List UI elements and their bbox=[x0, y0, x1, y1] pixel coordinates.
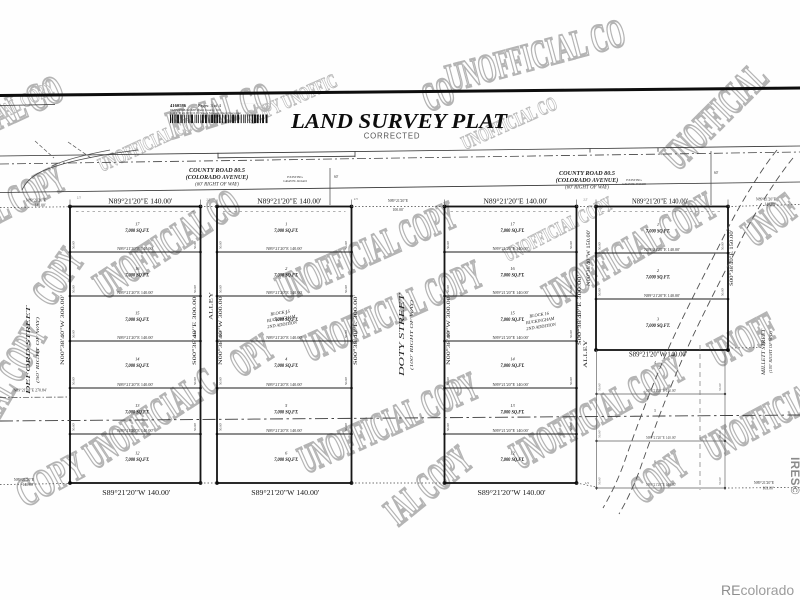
svg-text:140.00': 140.00' bbox=[764, 203, 775, 207]
svg-text:50.00': 50.00' bbox=[193, 376, 197, 385]
svg-text:N89°21'20"E 140.00': N89°21'20"E 140.00' bbox=[644, 247, 680, 252]
svg-text:50.00': 50.00' bbox=[72, 329, 76, 338]
svg-text:50.00': 50.00' bbox=[344, 240, 348, 249]
svg-text:S89°21'20"W 140.00': S89°21'20"W 140.00' bbox=[102, 488, 171, 497]
svg-text:7,000 SQ.FT.: 7,000 SQ.FT. bbox=[125, 228, 149, 234]
svg-text:N89°21'20"E 140.00': N89°21'20"E 140.00' bbox=[493, 246, 529, 251]
svg-text:50.00': 50.00' bbox=[721, 241, 725, 250]
svg-text:7,000 SQ.FT.: 7,000 SQ.FT. bbox=[646, 275, 670, 281]
svg-text:N89°21'20"E 140.00': N89°21'20"E 140.00' bbox=[117, 428, 153, 433]
svg-text:N89°21'20"E 140.00': N89°21'20"E 140.00' bbox=[257, 197, 321, 205]
svg-text:Pages: 3 of 4: Pages: 3 of 4 bbox=[198, 103, 222, 108]
svg-text:N89°21'20"E: N89°21'20"E bbox=[26, 199, 47, 203]
svg-text:50.00': 50.00' bbox=[598, 430, 602, 438]
svg-text:1 of 1 R 21.00 D 0.00 Steve Mo: 1 of 1 R 21.00 D 0.00 Steve Moreno Clerk… bbox=[170, 111, 241, 115]
svg-text:S89°21'20"W 140.00': S89°21'20"W 140.00' bbox=[478, 488, 547, 497]
svg-text:6: 6 bbox=[654, 459, 656, 464]
svg-text:N89°21'20"E 140.00': N89°21'20"E 140.00' bbox=[493, 335, 529, 340]
svg-text:N89°21'20"E 270.84': N89°21'20"E 270.84' bbox=[13, 389, 46, 393]
svg-text:N89°21'20"E 140.00': N89°21'20"E 140.00' bbox=[632, 197, 688, 205]
svg-text:N89°21'20"E 140.00': N89°21'20"E 140.00' bbox=[117, 335, 153, 340]
svg-text:100.00': 100.00' bbox=[392, 208, 403, 212]
svg-text:7,000 SQ.FT.: 7,000 SQ.FT. bbox=[501, 273, 525, 279]
svg-text:50.00': 50.00' bbox=[193, 284, 197, 293]
svg-text:N89°21'20"E 140.00': N89°21'20"E 140.00' bbox=[266, 290, 302, 295]
svg-text:4: 4 bbox=[654, 360, 656, 365]
svg-text:N89°21'20"E 140.00': N89°21'20"E 140.00' bbox=[108, 197, 172, 205]
svg-text:7,000 SQ.FT.: 7,000 SQ.FT. bbox=[646, 323, 670, 329]
svg-text:N89°21'20"E 140.00': N89°21'20"E 140.00' bbox=[493, 382, 529, 387]
svg-text:(COLORADO AVENUE): (COLORADO AVENUE) bbox=[556, 177, 619, 184]
svg-text:(60' RIGHT OF WAY): (60' RIGHT OF WAY) bbox=[565, 186, 609, 191]
svg-text:IRES©: IRES© bbox=[788, 457, 800, 495]
svg-text:50.00': 50.00' bbox=[193, 422, 197, 431]
svg-text:N89°21'20"E 140.00': N89°21'20"E 140.00' bbox=[646, 436, 676, 440]
svg-text:50.00': 50.00' bbox=[598, 383, 602, 391]
svg-text:S89°21'20"W 140.00': S89°21'20"W 140.00' bbox=[629, 351, 687, 359]
svg-text:N89°21'20"E 140.00': N89°21'20"E 140.00' bbox=[646, 483, 676, 487]
svg-text:REcolorado: REcolorado bbox=[721, 582, 794, 598]
svg-text:7,000 SQ.FT.: 7,000 SQ.FT. bbox=[501, 363, 525, 369]
svg-text:60': 60' bbox=[334, 175, 339, 179]
svg-text:N89°21'20"E 140.00': N89°21'20"E 140.00' bbox=[266, 428, 302, 433]
svg-text:7,000 SQ.FT.: 7,000 SQ.FT. bbox=[646, 228, 670, 234]
svg-text:103.00': 103.00' bbox=[762, 487, 773, 491]
svg-text:4160586: 4160586 bbox=[170, 103, 187, 108]
svg-text:7,000 SQ.FT.: 7,000 SQ.FT. bbox=[125, 457, 149, 463]
svg-text:2.5': 2.5' bbox=[583, 198, 588, 202]
svg-text:LAND SURVEY PLAT: LAND SURVEY PLAT bbox=[290, 109, 508, 133]
svg-text:7,000 SQ.FT.: 7,000 SQ.FT. bbox=[274, 273, 298, 279]
svg-text:N89°21'20"E 140.00': N89°21'20"E 140.00' bbox=[266, 246, 302, 251]
svg-text:50.00': 50.00' bbox=[598, 477, 602, 485]
svg-text:50.00': 50.00' bbox=[718, 430, 722, 438]
svg-text:50.00': 50.00' bbox=[569, 284, 573, 293]
svg-text:50.00': 50.00' bbox=[718, 477, 722, 485]
svg-text:(50' RIGHT OF WAY): (50' RIGHT OF WAY) bbox=[35, 316, 40, 383]
svg-text:7,000 SQ.FT.: 7,000 SQ.FT. bbox=[501, 317, 525, 323]
svg-text:N89°21'20"E 140.00': N89°21'20"E 140.00' bbox=[493, 290, 529, 295]
svg-text:GRAVEL ROAD: GRAVEL ROAD bbox=[283, 179, 307, 183]
svg-text:50.00': 50.00' bbox=[72, 240, 76, 249]
svg-text:ALLEY: ALLEY bbox=[583, 340, 589, 368]
svg-text:50.00': 50.00' bbox=[446, 240, 450, 249]
svg-text:MILLETT STREET: MILLETT STREET bbox=[761, 328, 767, 376]
svg-text:N00°38'40"W 150.00': N00°38'40"W 150.00' bbox=[585, 230, 592, 286]
svg-text:2.5': 2.5' bbox=[77, 196, 82, 200]
svg-text:7,000 SQ.FT.: 7,000 SQ.FT. bbox=[274, 228, 298, 234]
svg-text:2.5': 2.5' bbox=[206, 198, 211, 202]
svg-text:DEFORD STREET: DEFORD STREET bbox=[25, 304, 32, 396]
svg-text:N89°21'20"E 140.00': N89°21'20"E 140.00' bbox=[117, 290, 153, 295]
svg-text:N89°21'20"E 140.00': N89°21'20"E 140.00' bbox=[266, 382, 302, 387]
svg-text:50.00': 50.00' bbox=[219, 376, 223, 385]
svg-text:N89°21'20"E 140.00': N89°21'20"E 140.00' bbox=[117, 382, 153, 387]
svg-text:(100' RIGHT OF WAY): (100' RIGHT OF WAY) bbox=[769, 330, 773, 373]
svg-text:N00°38'40"W 300.00': N00°38'40"W 300.00' bbox=[445, 295, 452, 365]
svg-text:140.00': 140.00' bbox=[34, 204, 45, 208]
svg-text:1: 1 bbox=[657, 222, 659, 227]
svg-text:50.00': 50.00' bbox=[219, 240, 223, 249]
svg-text:50.00': 50.00' bbox=[598, 287, 602, 296]
svg-text:50.00': 50.00' bbox=[446, 376, 450, 385]
svg-text:7,000 SQ.FT.: 7,000 SQ.FT. bbox=[125, 410, 149, 416]
svg-text:COUNTY ROAD 80.5: COUNTY ROAD 80.5 bbox=[189, 167, 245, 174]
svg-text:300.00': 300.00' bbox=[575, 325, 580, 339]
svg-text:N89°21'20"E: N89°21'20"E bbox=[756, 198, 777, 202]
svg-text:7,000 SQ.FT.: 7,000 SQ.FT. bbox=[501, 228, 525, 234]
svg-text:N89°21'20"E: N89°21'20"E bbox=[388, 199, 409, 203]
svg-text:50.00': 50.00' bbox=[344, 284, 348, 293]
svg-text:50.00': 50.00' bbox=[718, 383, 722, 391]
svg-text:N89°21'20"E 140.00': N89°21'20"E 140.00' bbox=[646, 389, 676, 393]
svg-text:50.00': 50.00' bbox=[219, 422, 223, 431]
svg-text:50.00': 50.00' bbox=[72, 284, 76, 293]
svg-text:N89°21'20"E: N89°21'20"E bbox=[754, 481, 775, 485]
svg-text:ALLEY: ALLEY bbox=[209, 292, 215, 320]
svg-text:EXISTING: EXISTING bbox=[626, 178, 642, 182]
svg-text:50.00': 50.00' bbox=[344, 422, 348, 431]
svg-text:DOTY STREET: DOTY STREET bbox=[399, 292, 406, 378]
svg-text:7,000 SQ.FT.: 7,000 SQ.FT. bbox=[125, 363, 149, 369]
svg-text:5: 5 bbox=[654, 408, 656, 413]
svg-text:50.00': 50.00' bbox=[446, 422, 450, 431]
svg-text:50.00': 50.00' bbox=[569, 376, 573, 385]
svg-text:50.00': 50.00' bbox=[344, 329, 348, 338]
svg-text:N89°21'20"E: N89°21'20"E bbox=[14, 478, 35, 482]
svg-text:50.00': 50.00' bbox=[72, 422, 76, 431]
svg-text:(COLORADO AVENUE): (COLORADO AVENUE) bbox=[186, 174, 249, 181]
svg-text:50.00': 50.00' bbox=[219, 284, 223, 293]
svg-text:2.5': 2.5' bbox=[354, 197, 359, 201]
svg-text:S89°21'20"W 140.00': S89°21'20"W 140.00' bbox=[251, 488, 320, 497]
svg-text:50.00': 50.00' bbox=[569, 240, 573, 249]
svg-text:S00°38'40"E 300.00': S00°38'40"E 300.00' bbox=[191, 295, 198, 365]
svg-text:140.00': 140.00' bbox=[22, 483, 33, 487]
svg-text:N89°21'20"E 140.00': N89°21'20"E 140.00' bbox=[117, 246, 153, 251]
svg-text:7,000 SQ.FT.: 7,000 SQ.FT. bbox=[274, 363, 298, 369]
svg-text:N00°38'40"W 300.00': N00°38'40"W 300.00' bbox=[59, 295, 66, 365]
svg-text:7,000 SQ.FT.: 7,000 SQ.FT. bbox=[125, 317, 149, 323]
svg-text:1: 1 bbox=[285, 221, 287, 226]
svg-text:COUNTY ROAD 80.5: COUNTY ROAD 80.5 bbox=[559, 170, 615, 177]
svg-text:N89°21'20"E 140.00': N89°21'20"E 140.00' bbox=[493, 428, 529, 433]
svg-text:7,000 SQ.FT.: 7,000 SQ.FT. bbox=[274, 410, 298, 416]
svg-text:50.00': 50.00' bbox=[193, 240, 197, 249]
svg-text:N89°21'20"E 140.00': N89°21'20"E 140.00' bbox=[266, 335, 302, 340]
svg-text:50.00': 50.00' bbox=[72, 376, 76, 385]
svg-text:(100' RIGHT OF WAY): (100' RIGHT OF WAY) bbox=[409, 299, 414, 370]
svg-text:50.00': 50.00' bbox=[721, 287, 725, 296]
svg-text:7,000 SQ.FT.: 7,000 SQ.FT. bbox=[274, 457, 298, 463]
svg-text:(60' RIGHT OF WAY): (60' RIGHT OF WAY) bbox=[195, 183, 239, 188]
svg-text:N89°21'20"E 140.00': N89°21'20"E 140.00' bbox=[484, 197, 548, 205]
svg-text:S00°38'40"E 300.00': S00°38'40"E 300.00' bbox=[352, 295, 359, 365]
svg-text:N89°21'20"E 140.00': N89°21'20"E 140.00' bbox=[644, 293, 680, 298]
svg-text:..............................: ............................... bbox=[240, 101, 266, 105]
svg-text:S00°38'40"E 150.00': S00°38'40"E 150.00' bbox=[728, 230, 735, 286]
svg-text:60': 60' bbox=[714, 171, 719, 175]
svg-text:GRAVEL ROAD: GRAVEL ROAD bbox=[622, 182, 646, 186]
svg-text:50.00': 50.00' bbox=[598, 241, 602, 250]
svg-text:50.00': 50.00' bbox=[569, 422, 573, 431]
svg-text:CORRECTED: CORRECTED bbox=[364, 132, 421, 141]
svg-text:50.00': 50.00' bbox=[344, 376, 348, 385]
svg-text:50.00': 50.00' bbox=[569, 329, 573, 338]
svg-text:7,000 SQ.FT.: 7,000 SQ.FT. bbox=[501, 410, 525, 416]
svg-text:N00°38'40"W 300.00': N00°38'40"W 300.00' bbox=[217, 295, 224, 365]
svg-text:7,000 SQ.FT.: 7,000 SQ.FT. bbox=[125, 273, 149, 279]
svg-text:L/S: L/S bbox=[585, 481, 590, 485]
svg-text:50.00': 50.00' bbox=[446, 284, 450, 293]
svg-text:EXISTING: EXISTING bbox=[287, 175, 303, 179]
svg-text:7,000 SQ.FT.: 7,000 SQ.FT. bbox=[501, 457, 525, 463]
